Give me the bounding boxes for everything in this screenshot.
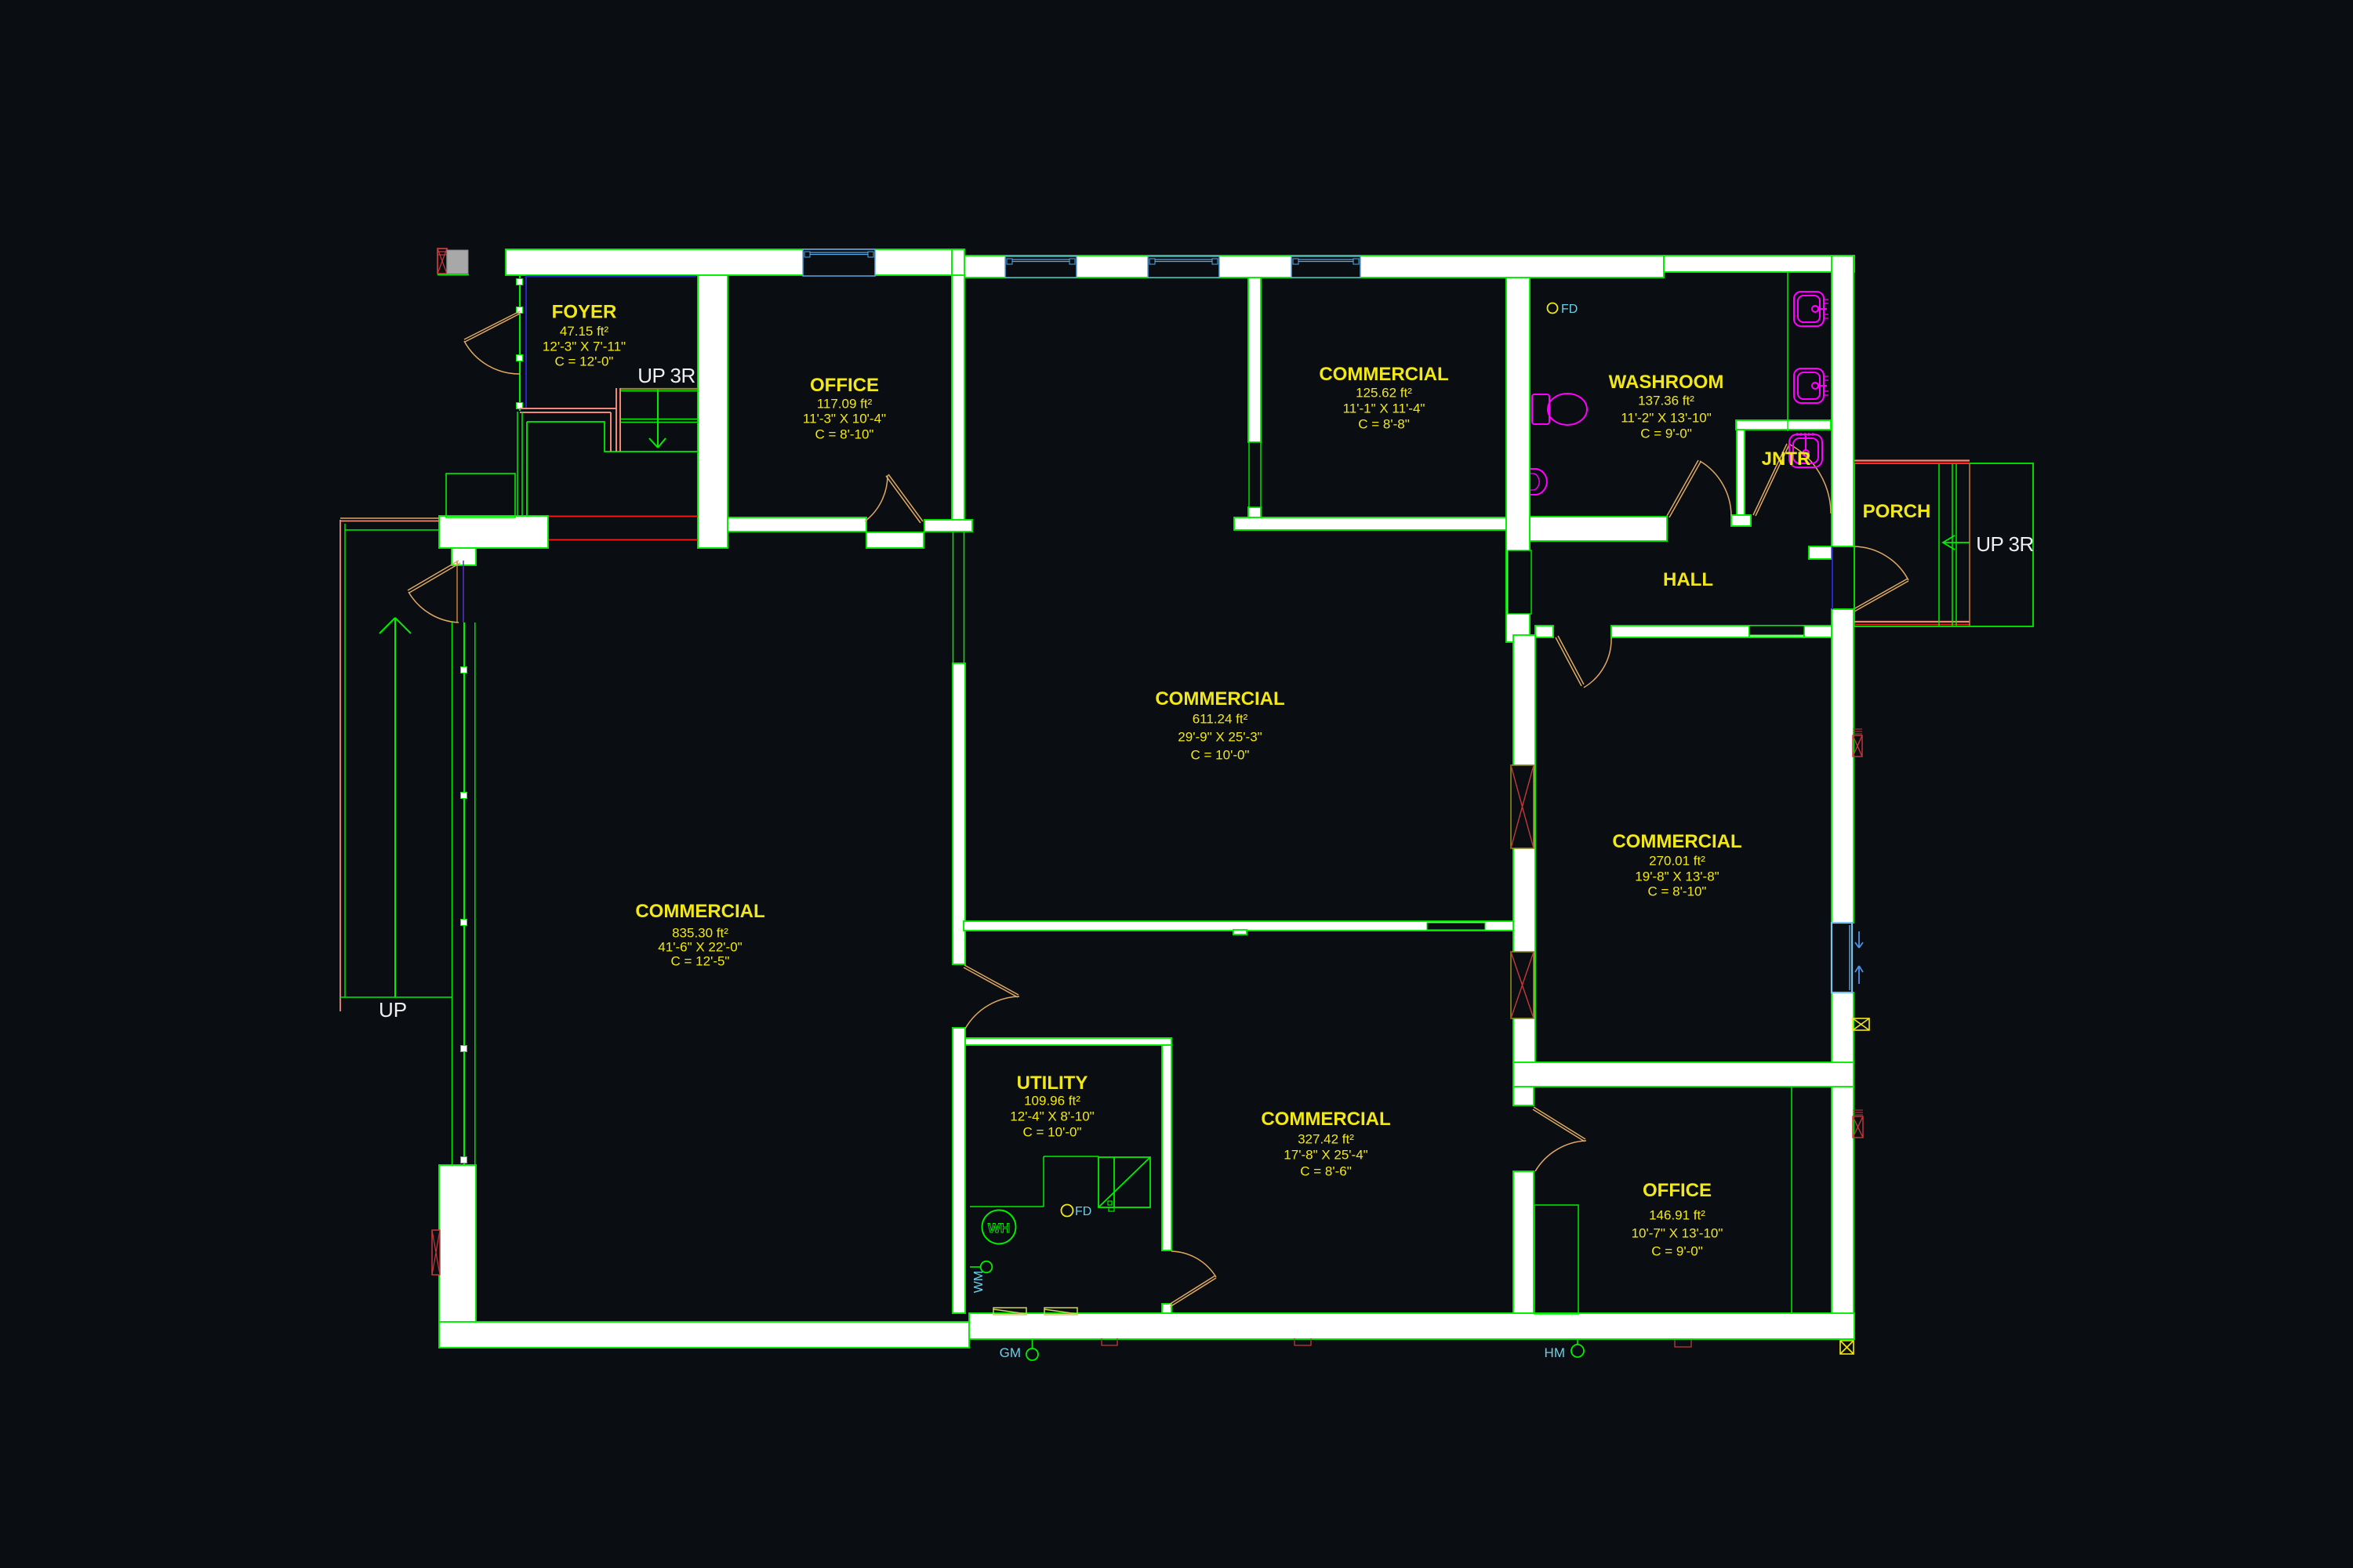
svg-text:611.24 ft²: 611.24 ft² (1193, 712, 1248, 727)
svg-text:327.42 ft²: 327.42 ft² (1298, 1132, 1354, 1147)
svg-text:UP: UP (379, 998, 407, 1022)
svg-text:FOYER: FOYER (552, 302, 617, 323)
svg-text:29'-9" X 25'-3": 29'-9" X 25'-3" (1178, 730, 1262, 745)
svg-text:C = 8'-8": C = 8'-8" (1358, 417, 1410, 432)
svg-text:PORCH: PORCH (1863, 501, 1931, 522)
svg-text:41'-6" X 22'-0": 41'-6" X 22'-0" (658, 940, 742, 955)
svg-text:C = 8'-6": C = 8'-6" (1300, 1164, 1352, 1179)
svg-text:C = 10'-0": C = 10'-0" (1191, 748, 1250, 763)
svg-text:COMMERCIAL: COMMERCIAL (1155, 688, 1284, 710)
svg-text:FD: FD (1561, 303, 1578, 316)
svg-text:UP 3R: UP 3R (1976, 532, 2034, 556)
svg-text:11'-3" X 10'-4": 11'-3" X 10'-4" (803, 412, 886, 426)
svg-text:11'-2" X 13'-10": 11'-2" X 13'-10" (1621, 411, 1712, 426)
svg-text:C = 12'-0": C = 12'-0" (555, 354, 614, 369)
svg-text:HALL: HALL (1663, 569, 1713, 590)
svg-text:270.01 ft²: 270.01 ft² (1649, 854, 1705, 869)
svg-text:C = 12'-5": C = 12'-5" (671, 954, 730, 969)
svg-text:11'-1" X 11'-4": 11'-1" X 11'-4" (1343, 401, 1425, 416)
svg-text:JNTR: JNTR (1762, 448, 1811, 470)
svg-text:109.96 ft²: 109.96 ft² (1024, 1094, 1080, 1109)
svg-text:117.09 ft²: 117.09 ft² (817, 397, 873, 412)
svg-text:137.36 ft²: 137.36 ft² (1638, 394, 1694, 408)
svg-text:146.91 ft²: 146.91 ft² (1649, 1208, 1705, 1223)
svg-text:COMMERCIAL: COMMERCIAL (1319, 364, 1448, 385)
svg-text:12'-3" X 7'-11": 12'-3" X 7'-11" (543, 339, 626, 354)
svg-text:17'-8" X 25'-4": 17'-8" X 25'-4" (1284, 1148, 1367, 1163)
svg-text:OFFICE: OFFICE (810, 375, 879, 396)
svg-text:C = 9'-0": C = 9'-0" (1651, 1244, 1703, 1259)
svg-text:OFFICE: OFFICE (1643, 1180, 1712, 1201)
svg-text:125.62 ft²: 125.62 ft² (1356, 386, 1412, 401)
svg-text:12'-4" X 8'-10": 12'-4" X 8'-10" (1010, 1109, 1094, 1124)
svg-text:C = 8'-10": C = 8'-10" (1648, 884, 1707, 899)
svg-text:UP 3R: UP 3R (637, 364, 695, 387)
svg-text:COMMERCIAL: COMMERCIAL (1612, 831, 1741, 852)
svg-text:10'-7" X 13'-10": 10'-7" X 13'-10" (1632, 1226, 1723, 1241)
svg-text:C = 9'-0": C = 9'-0" (1640, 426, 1692, 441)
svg-text:COMMERCIAL: COMMERCIAL (635, 901, 764, 922)
svg-text:COMMERCIAL: COMMERCIAL (1261, 1109, 1390, 1130)
svg-text:HM: HM (1545, 1345, 1565, 1360)
svg-text:UTILITY: UTILITY (1017, 1073, 1088, 1094)
svg-text:47.15 ft²: 47.15 ft² (560, 324, 609, 339)
svg-text:GM: GM (1000, 1345, 1021, 1360)
svg-text:835.30 ft²: 835.30 ft² (672, 926, 728, 941)
svg-text:WASHROOM: WASHROOM (1609, 372, 1724, 393)
svg-text:19'-8" X 13'-8": 19'-8" X 13'-8" (1635, 869, 1719, 884)
svg-text:WM: WM (972, 1271, 986, 1293)
svg-text:C = 8'-10": C = 8'-10" (815, 427, 874, 442)
svg-text:WH: WH (988, 1221, 1010, 1236)
svg-text:FD: FD (1075, 1205, 1091, 1218)
svg-text:C = 10'-0": C = 10'-0" (1023, 1125, 1082, 1140)
